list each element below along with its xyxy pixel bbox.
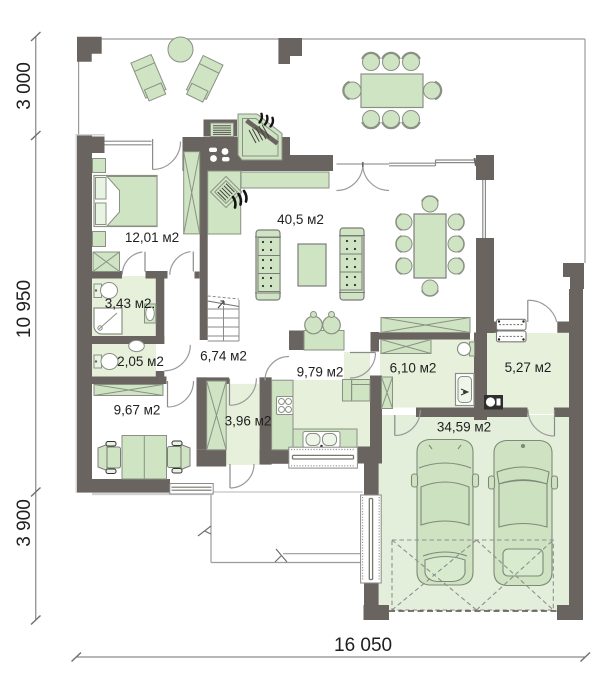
svg-text:3 000: 3 000 [14, 62, 35, 110]
svg-text:10 950: 10 950 [14, 280, 35, 338]
svg-text:9,79 м2: 9,79 м2 [297, 365, 344, 380]
svg-text:9,67 м2: 9,67 м2 [114, 403, 161, 418]
svg-text:12,01 м2: 12,01 м2 [125, 230, 179, 245]
svg-text:3,96 м2: 3,96 м2 [225, 414, 272, 429]
svg-text:3,43 м2.: 3,43 м2. [105, 296, 156, 311]
svg-text:3 900: 3 900 [14, 499, 35, 547]
svg-text:5,27 м2: 5,27 м2 [505, 360, 552, 375]
svg-text:40,5 м2: 40,5 м2 [277, 212, 324, 227]
svg-text:34,59 м2: 34,59 м2 [437, 420, 491, 435]
svg-text:6,10 м2: 6,10 м2 [390, 361, 437, 376]
svg-text:2,05 м2: 2,05 м2 [117, 354, 164, 369]
svg-text:6,74 м2: 6,74 м2 [200, 349, 247, 364]
svg-text:16 050: 16 050 [334, 635, 392, 656]
